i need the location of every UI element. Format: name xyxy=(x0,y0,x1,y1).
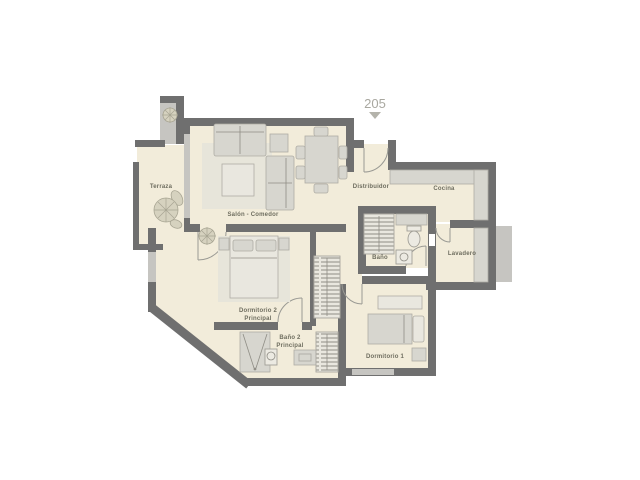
wardrobe-icon xyxy=(316,332,338,372)
dormitorio2-furniture xyxy=(218,236,290,302)
wardrobes xyxy=(314,256,340,372)
double-bed xyxy=(230,236,278,298)
single-bed xyxy=(368,314,424,344)
window xyxy=(148,252,156,282)
room-label-terraza: Terraza xyxy=(150,184,173,190)
dining-chair xyxy=(314,184,328,193)
room-label-bano: Baño xyxy=(372,255,388,261)
terrace-glass-wall xyxy=(184,134,190,218)
room-label-dormitorio1: Dormitorio 1 xyxy=(366,354,405,360)
floor-plan: 205 Terraza Salón - Comedor Distribuidor… xyxy=(0,0,640,480)
vanity xyxy=(294,350,316,365)
room-label-distribuidor: Distribuidor xyxy=(353,184,390,190)
room-label-dormitorio2-line1: Dormitorio 2 xyxy=(239,308,278,314)
entrance-marker-icon xyxy=(369,112,381,119)
dining-chair xyxy=(314,127,328,136)
sink-icon xyxy=(396,250,412,264)
dining-chair xyxy=(339,166,347,179)
room-label-bano2-line2: Principal xyxy=(276,343,303,349)
sink-icon xyxy=(265,349,277,365)
room-label-dormitorio2-line2: Principal xyxy=(244,316,271,322)
dining-chair xyxy=(339,146,347,159)
wardrobe-icon xyxy=(314,256,340,318)
desk xyxy=(378,296,422,309)
room-label-lavadero: Lavadero xyxy=(448,251,476,257)
nightstand xyxy=(219,238,229,250)
room-label-salon: Salón - Comedor xyxy=(227,212,278,218)
nightstand xyxy=(412,348,426,361)
kitchen-counter xyxy=(474,170,488,220)
coffee-table xyxy=(222,164,254,196)
unit-number: 205 xyxy=(364,96,386,111)
toilet-icon xyxy=(407,226,421,247)
side-table xyxy=(270,134,288,152)
wall-niche xyxy=(429,234,435,246)
window xyxy=(352,369,394,375)
exterior-ledge xyxy=(496,226,512,282)
dining-chair xyxy=(296,146,305,159)
dining-chair xyxy=(296,166,305,179)
dining-table xyxy=(305,136,338,183)
room-label-cocina: Cocina xyxy=(433,186,455,192)
room-label-bano2-line1: Baño 2 xyxy=(279,335,301,341)
nightstand xyxy=(279,238,289,250)
bathroom-shelf xyxy=(396,214,427,225)
kitchen-counter xyxy=(390,170,488,184)
